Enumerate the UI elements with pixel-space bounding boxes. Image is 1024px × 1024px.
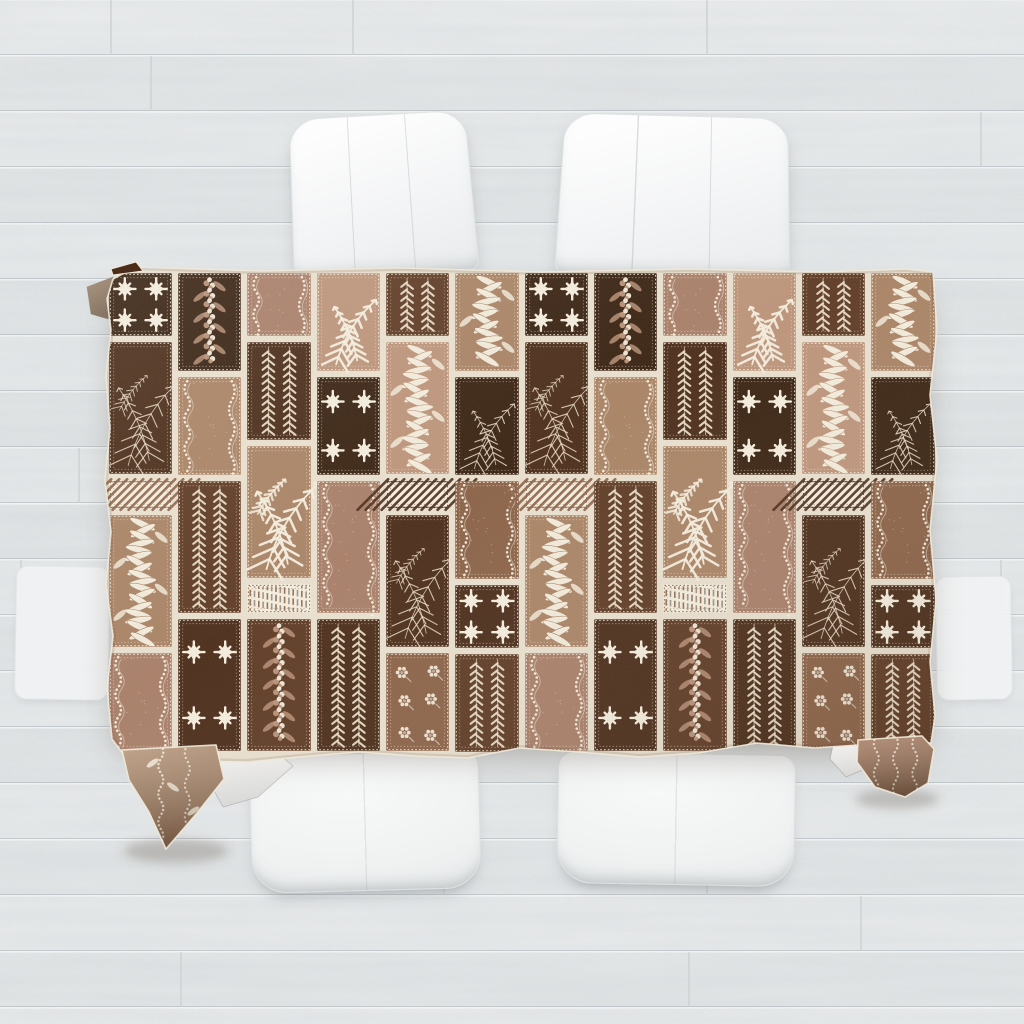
tablecloth-drape [857,736,934,797]
drape-shadow [124,839,228,863]
tablecloth-fabric [81,267,937,770]
tablecloth [0,0,1024,1024]
scene [0,0,1024,1024]
tablecloth-drape [122,745,224,849]
